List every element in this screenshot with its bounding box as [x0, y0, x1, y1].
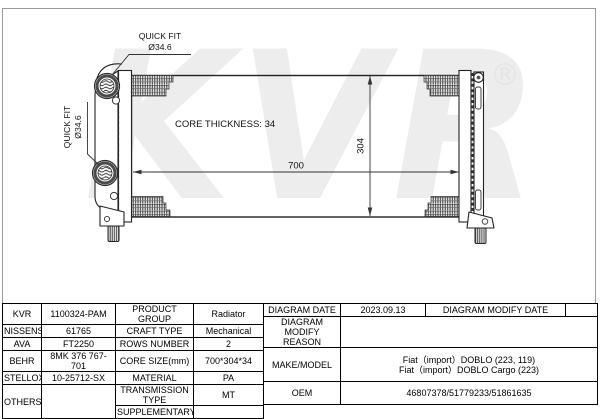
- width-dimension-label: 700: [288, 161, 304, 172]
- attr-craft-type: CRAFT TYPE: [116, 325, 194, 338]
- spec-row: BEHR 8MK 376 767-701 CORE SIZE(mm) 700*3…: [3, 351, 264, 372]
- spec-row: AVA FT2250 ROWS NUMBER 2: [3, 338, 264, 351]
- attr-product-group: PRODUCT GROUP: [116, 304, 194, 325]
- svg-text:Ø34.6: Ø34.6: [148, 42, 172, 52]
- fin-band-bottom-right: [425, 197, 459, 217]
- fin-band-top-left: [131, 76, 173, 97]
- right-drain-stud: [475, 228, 486, 244]
- spec-row: OTHERS TRANSMISSION TYPE MT: [3, 385, 264, 406]
- value-make-model: Fiat（import）DOBLO (223, 119) Fiat（import…: [341, 348, 598, 382]
- attr-transmission-type: TRANSMISSION TYPE: [116, 385, 194, 406]
- value-material: PA: [194, 372, 264, 385]
- tank-screw-top: [112, 97, 119, 104]
- height-dimension: [368, 76, 373, 216]
- attr-core-size: CORE SIZE(mm): [116, 351, 194, 372]
- label-diagram-modify-date: DIAGRAM MODIFY DATE: [426, 304, 566, 317]
- label-diagram-modify-reason: DIAGRAM MODIFY REASON: [264, 317, 341, 348]
- label-diagram-date: DIAGRAM DATE: [264, 304, 341, 317]
- svg-text:QUICK FIT: QUICK FIT: [139, 31, 182, 41]
- value-supplementary: [194, 406, 264, 419]
- info-row: OEM 46807378/51779233/51861635: [264, 382, 598, 405]
- brand-behr: BEHR: [3, 351, 42, 372]
- brand-stellox: STELLOX: [3, 372, 42, 385]
- spec-row: STELLOX 10-25712-SX MATERIAL PA: [3, 372, 264, 385]
- quick-fit-callout-top: QUICK FIT Ø34.6: [112, 31, 191, 75]
- quick-fit-port-bottom: [93, 161, 118, 186]
- value-diagram-modify-reason: [341, 317, 598, 348]
- info-row: MAKE/MODEL Fiat（import）DOBLO (223, 119) …: [264, 348, 598, 382]
- value-product-group: Radiator: [194, 304, 264, 325]
- attr-material: MATERIAL: [116, 372, 194, 385]
- fin-band-bottom-left: [131, 197, 170, 217]
- quick-fit-port-top: [95, 74, 120, 99]
- value-oem: 46807378/51779233/51861635: [341, 382, 598, 405]
- value-craft-type: Mechanical: [194, 325, 264, 338]
- stellox-part-number: 10-25712-SX: [42, 372, 116, 385]
- attr-rows-number: ROWS NUMBER: [116, 338, 194, 351]
- value-transmission-type: MT: [194, 385, 264, 406]
- info-row: DIAGRAM DATE 2023.09.13 DIAGRAM MODIFY D…: [264, 304, 598, 317]
- value-diagram-modify-date: [566, 304, 598, 317]
- value-core-size: 700*304*34: [194, 351, 264, 372]
- brand-ava: AVA: [3, 338, 42, 351]
- height-dimension-label: 304: [356, 138, 367, 154]
- ava-part-number: FT2250: [42, 338, 116, 351]
- right-header-plate: [459, 71, 472, 223]
- fin-band-top-right: [424, 76, 459, 97]
- left-header-plate: [118, 71, 132, 223]
- tank-screw-bottom: [110, 192, 117, 199]
- info-table: DIAGRAM DATE 2023.09.13 DIAGRAM MODIFY D…: [263, 303, 598, 405]
- info-row: DIAGRAM MODIFY REASON: [264, 317, 598, 348]
- value-rows-number: 2: [194, 338, 264, 351]
- quick-fit-callout-side: QUICK FIT Ø34.6: [62, 102, 99, 165]
- core-thickness-label: CORE THICKNESS: 34: [175, 119, 275, 130]
- kvr-part-number: 1100324-PAM: [42, 304, 116, 325]
- radiator-core-outline: [132, 76, 460, 218]
- label-oem: OEM: [264, 382, 341, 405]
- behr-part-number: 8MK 376 767-701: [42, 351, 116, 372]
- svg-text:QUICK FIT: QUICK FIT: [62, 105, 72, 148]
- spec-row: KVR 1100324-PAM PRODUCT GROUP Radiator: [3, 304, 264, 325]
- brand-kvr: KVR: [3, 304, 42, 325]
- svg-text:Ø34.6: Ø34.6: [73, 115, 83, 139]
- label-make-model: MAKE/MODEL: [264, 348, 341, 382]
- attr-supplementary: SUPPLEMENTARY: [116, 406, 194, 419]
- make-model-line-2: Fiat（import）DOBLO Cargo (223): [342, 365, 596, 375]
- value-diagram-date: 2023.09.13: [341, 304, 426, 317]
- spec-row: NISSENS 61765 CRAFT TYPE Mechanical: [3, 325, 264, 338]
- make-model-line-1: Fiat（import）DOBLO (223, 119): [342, 355, 596, 365]
- nissens-part-number: 61765: [42, 325, 116, 338]
- brand-nissens: NISSENS: [3, 325, 42, 338]
- left-drain-stud: [108, 226, 119, 242]
- radiator-technical-diagram: 700 304 CORE THICKNESS: 34 QUICK FIT Ø34…: [0, 0, 600, 302]
